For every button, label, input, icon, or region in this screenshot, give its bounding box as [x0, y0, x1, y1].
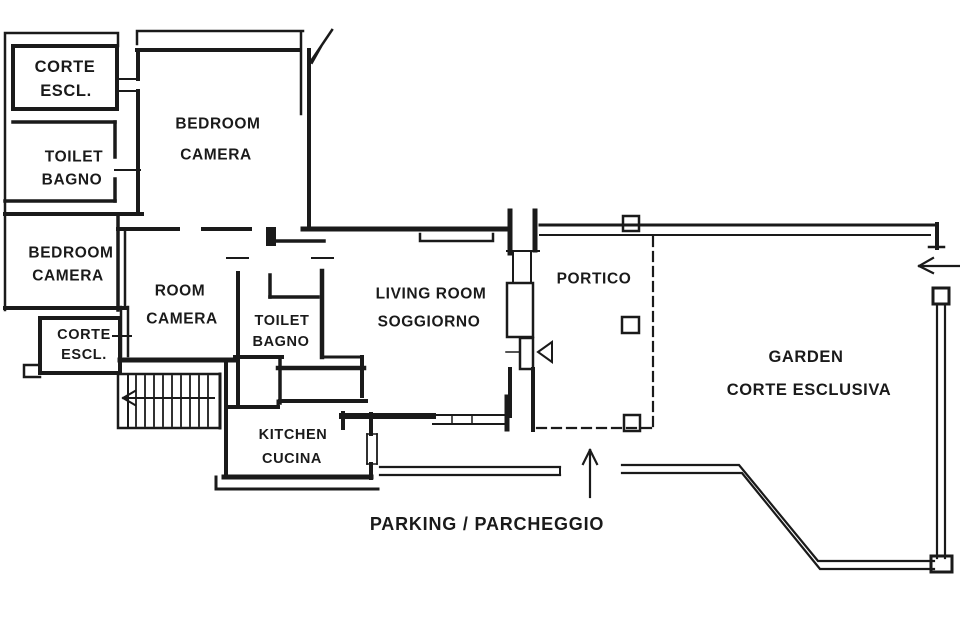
label-portico: PORTICO — [557, 271, 632, 287]
label-room-center-line2: CAMERA — [146, 311, 218, 327]
label-toilet-center-line1: TOILET — [255, 314, 310, 329]
label-living-room-line2: SOGGIORNO — [378, 314, 481, 330]
label-corte-escl-top-line1: CORTE — [35, 59, 96, 76]
label-parking: PARKING / PARCHEGGIO — [370, 515, 604, 533]
label-bedroom-top-line2: CAMERA — [180, 147, 252, 163]
label-kitchen-line2: CUCINA — [262, 452, 322, 467]
portico-pillars — [622, 216, 640, 431]
label-room-center-line1: ROOM — [155, 283, 206, 299]
label-toilet-top-line2: BAGNO — [42, 172, 103, 188]
label-living-room-line1: LIVING ROOM — [376, 286, 487, 302]
staircase — [118, 374, 220, 428]
door-swing-triangle-icon — [538, 342, 552, 362]
label-garden-line1: GARDEN — [768, 349, 843, 366]
pillar-icon — [622, 317, 639, 333]
label-bedroom-top-line1: BEDROOM — [175, 116, 260, 132]
label-toilet-center-line2: BAGNO — [253, 335, 310, 350]
label-corte-escl-left-line2: ESCL. — [61, 348, 107, 363]
garden-entrance-arrow-icon — [919, 258, 959, 273]
label-toilet-top-line1: TOILET — [45, 149, 103, 165]
floor-plan: CORTE ESCL. TOILET BAGNO BEDROOM CAMERA … — [0, 0, 960, 628]
label-corte-escl-top-line2: ESCL. — [40, 83, 92, 100]
label-corte-escl-left-line1: CORTE — [57, 328, 111, 343]
label-kitchen-line1: KITCHEN — [259, 428, 328, 443]
label-bedroom-left-line2: CAMERA — [32, 268, 104, 284]
label-bedroom-left-line1: BEDROOM — [28, 245, 113, 261]
label-garden-line2: CORTE ESCLUSIVA — [727, 382, 892, 399]
parking-entrance-arrow-icon — [583, 450, 597, 497]
